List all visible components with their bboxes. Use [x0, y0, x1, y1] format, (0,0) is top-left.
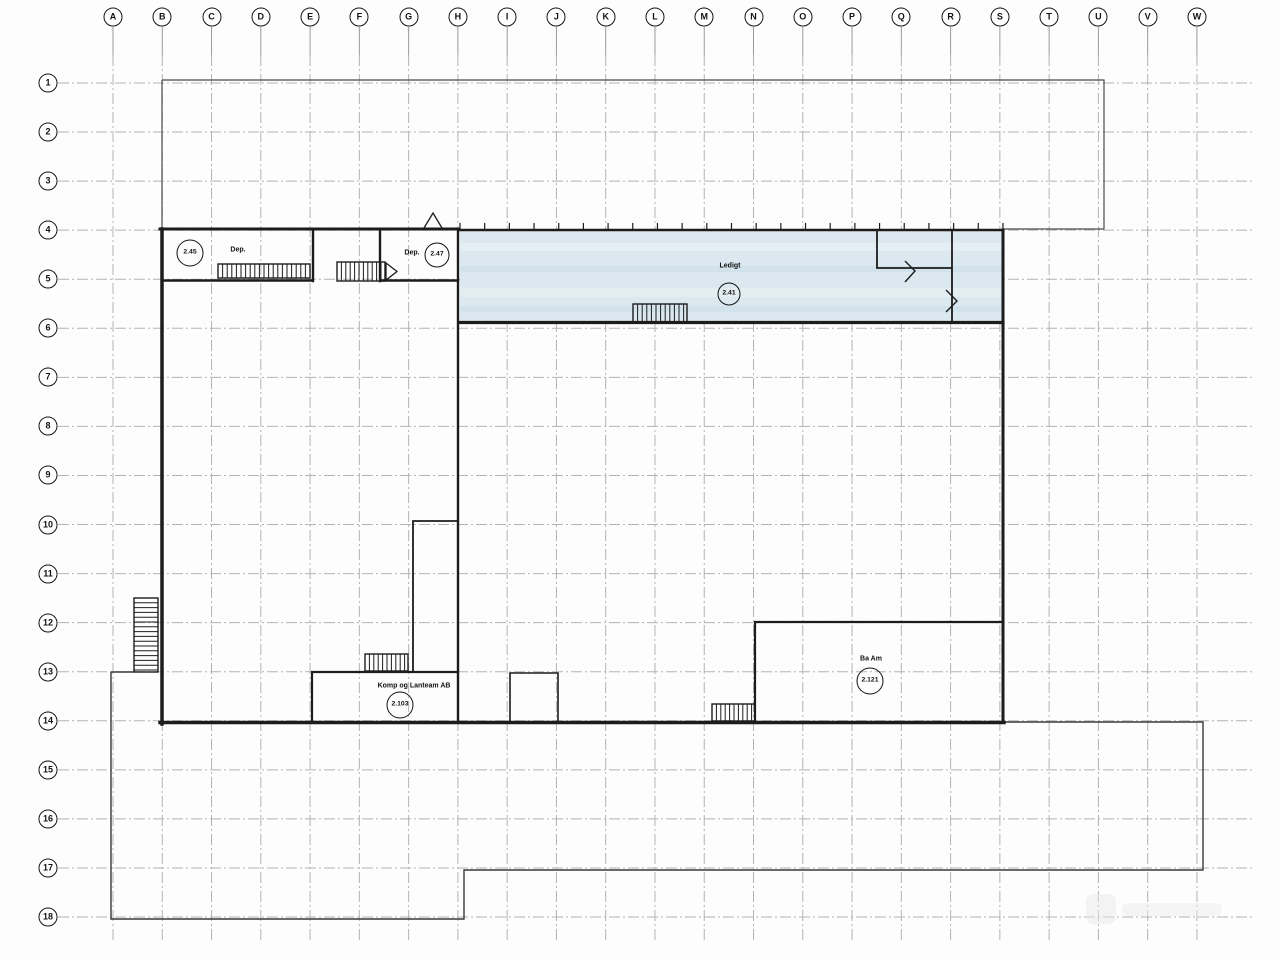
grid-row-2: 2 [39, 123, 58, 142]
grid-column-V: V [1138, 8, 1157, 27]
room-number-dep-right: 2.47 [425, 243, 450, 268]
grid-row-5: 5 [39, 270, 58, 289]
room-label-ba-am: Ba Am [860, 656, 882, 663]
stairs [134, 262, 755, 721]
notch-wall [413, 521, 458, 672]
grid-column-W: W [1187, 8, 1206, 27]
upper-floor-outline [162, 80, 1104, 229]
grid-column-U: U [1089, 8, 1108, 27]
grid-row-4: 4 [39, 221, 58, 240]
grid-column-P: P [843, 8, 862, 27]
grid-column-G: G [399, 8, 418, 27]
grid-column-H: H [448, 8, 467, 27]
grid-column-M: M [695, 8, 714, 27]
grid-column-Q: Q [892, 8, 911, 27]
room-label-dep-left: Dep. [230, 247, 245, 254]
grid-column-J: J [547, 8, 566, 27]
room-number-ledigt: 2.41 [718, 283, 741, 306]
room-label-ledigt: Ledigt [720, 263, 741, 270]
grid-column-A: A [104, 8, 123, 27]
grid-row-13: 13 [39, 662, 58, 681]
watermark-text [1122, 903, 1222, 916]
highlight-room [460, 231, 1003, 323]
roof-arrow-icon [424, 213, 442, 228]
grid-column-I: I [498, 8, 517, 27]
room-label-dep-right: Dep. [404, 250, 419, 257]
grid-row-15: 15 [39, 760, 58, 779]
grid-column-B: B [153, 8, 172, 27]
room-number-ba-am: 2.121 [857, 668, 884, 695]
grid-row-17: 17 [39, 858, 58, 877]
floor-plan-drawing [0, 0, 1280, 960]
grid-column-E: E [301, 8, 320, 27]
watermark-mark [1086, 894, 1116, 924]
grid-row-16: 16 [39, 809, 58, 828]
stair-arrow-icon [386, 263, 397, 280]
grid-row-12: 12 [39, 613, 58, 632]
grid-row-9: 9 [39, 466, 58, 485]
watermark [1080, 884, 1220, 938]
grid-column-S: S [990, 8, 1009, 27]
grid-row-6: 6 [39, 319, 58, 338]
grid-column-O: O [793, 8, 812, 27]
room-number-dep-left: 2.45 [177, 240, 204, 267]
room-label-komp: Komp og Lanteam AB [378, 683, 451, 690]
grid-lines [58, 27, 1253, 941]
grid-row-14: 14 [39, 711, 58, 730]
grid-column-L: L [645, 8, 664, 27]
grid-column-C: C [202, 8, 221, 27]
room-number-komp: 2.103 [387, 692, 414, 719]
small-room-walls [510, 673, 558, 722]
komp-room-walls [312, 672, 458, 722]
grid-row-7: 7 [39, 368, 58, 387]
grid-column-F: F [350, 8, 369, 27]
grid-column-T: T [1040, 8, 1059, 27]
grid-column-N: N [744, 8, 763, 27]
grid-row-18: 18 [39, 908, 58, 927]
grid-row-3: 3 [39, 172, 58, 191]
grid-column-K: K [596, 8, 615, 27]
grid-row-11: 11 [39, 564, 58, 583]
grid-row-10: 10 [39, 515, 58, 534]
grid-column-D: D [251, 8, 270, 27]
site-outline [111, 672, 1203, 919]
grid-row-1: 1 [39, 74, 58, 93]
grid-row-8: 8 [39, 417, 58, 436]
floor-plan-canvas: ABCDEFGHIJKLMNOPQRSTUVW 1234567891011121… [0, 0, 1280, 960]
grid-column-R: R [941, 8, 960, 27]
